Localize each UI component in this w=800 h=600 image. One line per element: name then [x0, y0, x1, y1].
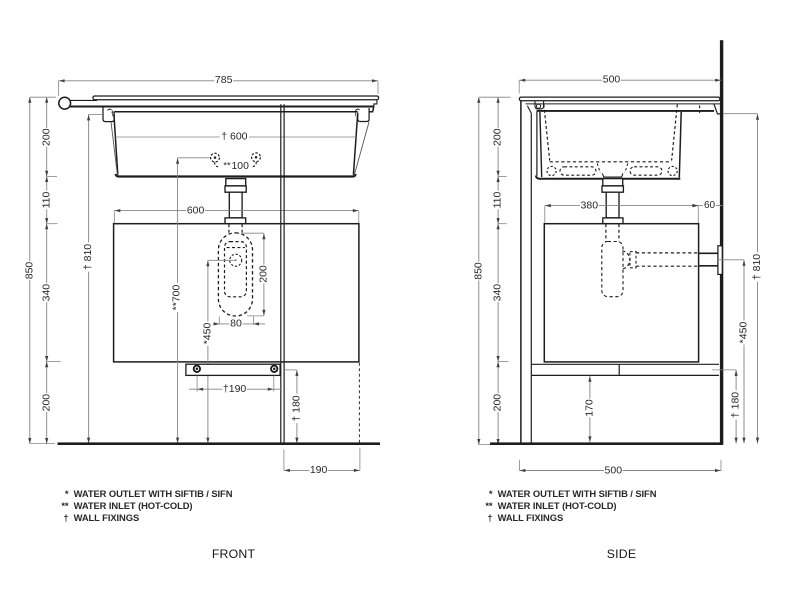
svg-text:FRONT: FRONT — [212, 547, 256, 561]
svg-text:WALL FIXINGS: WALL FIXINGS — [498, 512, 564, 523]
svg-text:†: † — [487, 512, 492, 523]
svg-text:785: 785 — [215, 74, 233, 86]
svg-text:500: 500 — [603, 73, 621, 85]
svg-text:80: 80 — [230, 318, 242, 330]
svg-text:200: 200 — [40, 394, 52, 412]
svg-text:600: 600 — [187, 204, 205, 216]
svg-text:WATER INLET (HOT-COLD): WATER INLET (HOT-COLD) — [74, 500, 193, 511]
svg-text:† 810: † 810 — [751, 254, 763, 280]
svg-text:340: 340 — [492, 284, 504, 302]
svg-text:WATER INLET (HOT-COLD): WATER INLET (HOT-COLD) — [498, 500, 617, 511]
svg-text:200: 200 — [258, 265, 270, 283]
svg-text:100: 100 — [232, 161, 250, 172]
svg-text:†190: †190 — [223, 383, 247, 395]
svg-text:WALL FIXINGS: WALL FIXINGS — [74, 512, 140, 523]
svg-text:500: 500 — [605, 464, 623, 476]
svg-text:**: ** — [61, 500, 69, 511]
svg-text:† 600: † 600 — [221, 131, 247, 143]
svg-text:WATER OUTLET WITH SIFTIB / SIF: WATER OUTLET WITH SIFTIB / SIFN — [498, 488, 657, 499]
svg-text:200: 200 — [492, 394, 504, 412]
svg-text:380: 380 — [581, 199, 599, 211]
svg-text:**: ** — [223, 160, 231, 170]
svg-text:170: 170 — [583, 399, 595, 417]
svg-text:† 810: † 810 — [82, 244, 94, 270]
svg-text:200: 200 — [40, 128, 52, 146]
svg-text:*450: *450 — [201, 323, 213, 345]
svg-text:WATER OUTLET WITH SIFTIB / SIF: WATER OUTLET WITH SIFTIB / SIFN — [74, 488, 233, 499]
svg-text:**700: **700 — [171, 285, 183, 311]
svg-text:*450: *450 — [738, 322, 750, 344]
svg-text:**: ** — [485, 500, 493, 511]
svg-text:† 180: † 180 — [291, 395, 303, 421]
svg-text:†: † — [63, 512, 68, 523]
svg-text:850: 850 — [23, 262, 35, 280]
svg-text:† 180: † 180 — [730, 392, 742, 418]
svg-text:*: * — [489, 488, 493, 499]
svg-text:850: 850 — [472, 262, 484, 280]
svg-text:SIDE: SIDE — [607, 547, 637, 561]
svg-text:110: 110 — [40, 191, 52, 208]
svg-text:60: 60 — [704, 200, 716, 211]
svg-text:110: 110 — [492, 191, 504, 208]
svg-text:340: 340 — [40, 284, 52, 302]
svg-text:190: 190 — [310, 464, 328, 476]
svg-text:*: * — [65, 488, 69, 499]
svg-text:200: 200 — [492, 128, 504, 146]
